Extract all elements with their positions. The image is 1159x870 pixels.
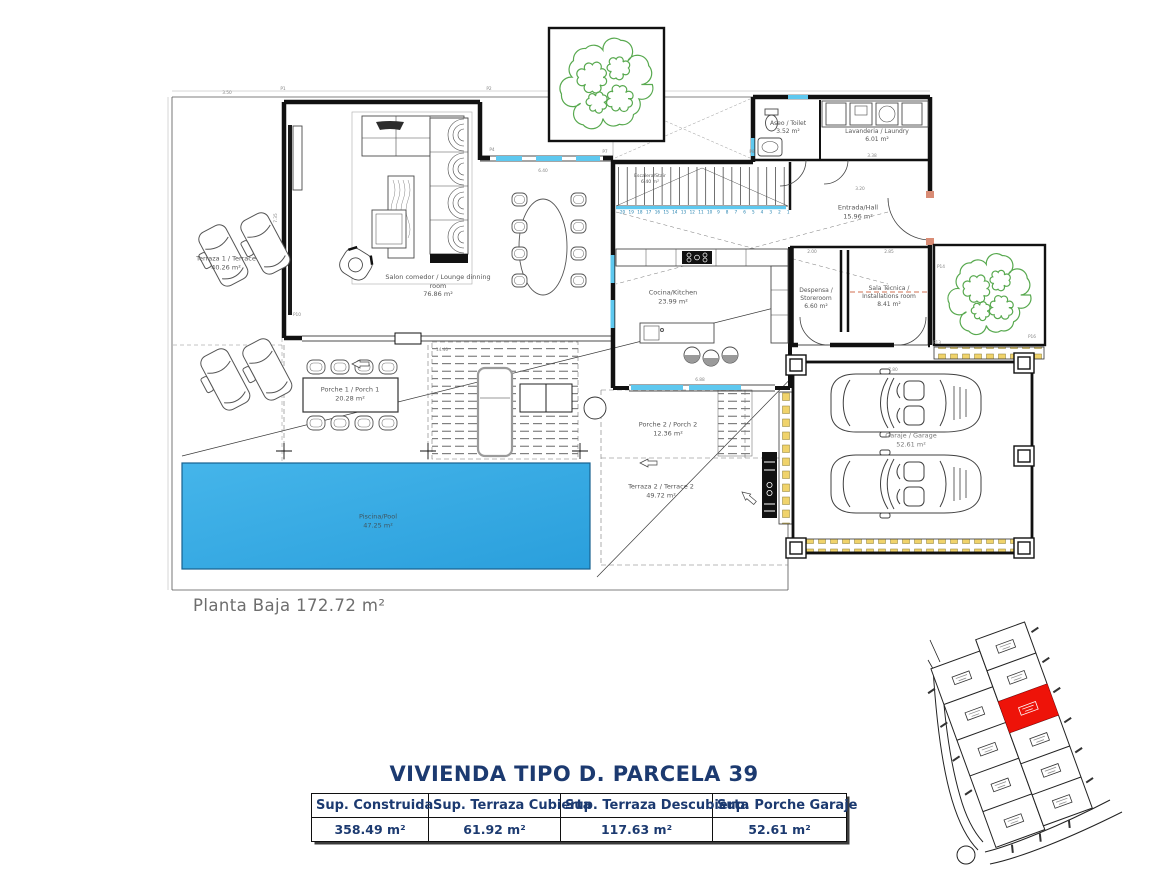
- svg-text:9: 9: [717, 210, 720, 215]
- svg-text:6.40: 6.40: [538, 168, 548, 174]
- svg-text:2: 2: [778, 210, 781, 215]
- svg-text:10: 10: [707, 210, 713, 215]
- pool: [182, 463, 590, 569]
- svg-text:4: 4: [761, 210, 764, 215]
- car-1: [831, 369, 981, 437]
- svg-text:P7: P7: [602, 149, 608, 155]
- svg-text:14: 14: [672, 210, 678, 215]
- svg-text:16: 16: [655, 210, 661, 215]
- svg-text:2.00: 2.00: [807, 249, 817, 255]
- summary-header: Sup. Construida: [312, 794, 429, 818]
- svg-text:P1: P1: [280, 86, 286, 92]
- summary-header-row: Sup. Construida Sup. Terraza Cubierta Su…: [312, 794, 846, 818]
- svg-text:P2: P2: [486, 86, 492, 92]
- svg-text:3.20: 3.20: [855, 186, 865, 192]
- svg-text:3.38: 3.38: [867, 153, 877, 159]
- svg-text:18: 18: [637, 210, 643, 215]
- svg-text:20: 20: [620, 210, 626, 215]
- svg-text:6: 6: [743, 210, 746, 215]
- svg-text:17: 17: [646, 210, 652, 215]
- svg-text:5: 5: [752, 210, 755, 215]
- svg-text:P14: P14: [937, 264, 945, 270]
- garage: [786, 353, 1034, 558]
- plan-title: VIVIENDA TIPO D. PARCELA 39: [300, 762, 848, 786]
- kitchen-furniture: [616, 249, 788, 366]
- svg-text:8: 8: [726, 210, 729, 215]
- page: 2019181716151413121110987654321: [0, 0, 1159, 870]
- summary-value: 52.61 m²: [713, 818, 846, 841]
- svg-text:7: 7: [735, 210, 738, 215]
- summary-value-row: 358.49 m² 61.92 m² 117.63 m² 52.61 m²: [312, 818, 846, 841]
- pergola-strip-bottom: [796, 539, 1014, 552]
- living-room-furniture: [293, 112, 472, 284]
- trees: [549, 28, 1045, 345]
- svg-text:7.35: 7.35: [273, 213, 279, 223]
- summary-table: Sup. Construida Sup. Terraza Cubierta Su…: [311, 793, 847, 842]
- summary-header: Sup. Terraza Cubierta: [429, 794, 561, 818]
- floor-plan-drawing: 2019181716151413121110987654321: [0, 0, 1159, 870]
- svg-text:3: 3: [769, 210, 772, 215]
- floor-label: Planta Baja 172.72 m²: [193, 596, 385, 615]
- svg-text:P10: P10: [293, 312, 301, 318]
- bathroom-laundry-fixtures: [758, 101, 928, 156]
- dining-furniture: [512, 193, 586, 295]
- porch1-furniture: [303, 360, 398, 430]
- summary-header: Sup. Porche Garaje: [713, 794, 846, 818]
- svg-text:12: 12: [690, 210, 696, 215]
- door-frame-salmon: [926, 191, 934, 198]
- svg-text:P4: P4: [489, 147, 495, 153]
- car-2: [831, 450, 981, 518]
- summary-value: 117.63 m²: [561, 818, 713, 841]
- svg-text:19: 19: [629, 210, 635, 215]
- sunbeds: [190, 210, 295, 416]
- svg-text:1: 1: [787, 210, 790, 215]
- summary-value: 61.92 m²: [429, 818, 561, 841]
- pergola-strip-left: [779, 392, 792, 524]
- svg-text:11: 11: [698, 210, 704, 215]
- summary-header: Sup. Terraza Descubierta: [561, 794, 713, 818]
- svg-text:P13: P13: [933, 340, 941, 346]
- svg-text:13: 13: [681, 210, 687, 215]
- svg-text:6.88: 6.88: [695, 377, 705, 383]
- svg-text:7.80: 7.80: [888, 367, 898, 373]
- summary-value: 358.49 m²: [312, 818, 429, 841]
- site-plan: [916, 618, 1122, 864]
- svg-text:15: 15: [663, 210, 669, 215]
- svg-text:3.50: 3.50: [222, 90, 232, 96]
- svg-text:P16: P16: [1028, 334, 1036, 340]
- svg-text:P8: P8: [749, 149, 755, 155]
- svg-text:14.40: 14.40: [436, 347, 449, 353]
- svg-text:2.85: 2.85: [884, 249, 894, 255]
